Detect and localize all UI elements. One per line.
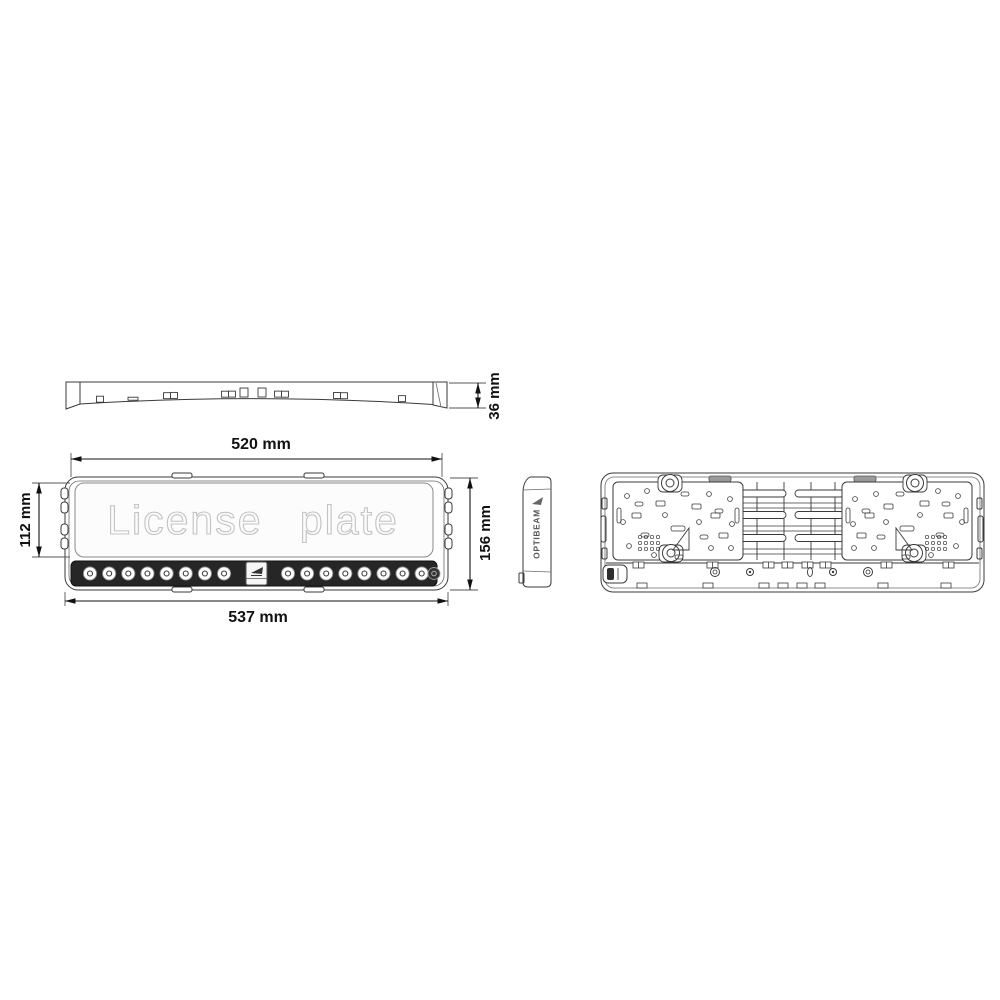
- led-ring: [222, 571, 227, 576]
- top-clip-tab: [854, 476, 876, 482]
- dimension-total-width: 537 mm: [65, 592, 448, 626]
- led-ring: [88, 571, 93, 576]
- front-view: License plate: [61, 473, 452, 592]
- led-ring: [164, 571, 169, 576]
- bottom-notch: [941, 583, 951, 588]
- back-mounting-panel-right: [842, 475, 972, 563]
- clip-tab: [399, 396, 406, 402]
- clip-tab: [97, 396, 104, 402]
- back-center-slots: [737, 482, 844, 560]
- led-ring: [126, 571, 131, 576]
- bottom-notch: [878, 583, 888, 588]
- clip-tab: [222, 391, 229, 397]
- dim-label-520mm: 520 mm: [231, 436, 291, 453]
- vent-slot: [737, 535, 786, 542]
- dimension-profile-height: 36 mm: [449, 372, 503, 420]
- clip-tab: [282, 391, 289, 397]
- led-ring: [145, 571, 150, 576]
- dim-label-112mm: 112 mm: [17, 492, 34, 547]
- led-ring: [286, 571, 291, 576]
- led-ring: [202, 571, 207, 576]
- frame-tab: [304, 587, 324, 592]
- latch-slot: [603, 565, 627, 583]
- clip-tab: [341, 393, 348, 399]
- vent-slot: [795, 512, 844, 519]
- bottom-notch: [815, 583, 825, 588]
- led-ring: [343, 571, 348, 576]
- dim-label-537mm: 537 mm: [228, 609, 288, 626]
- latch-pin: [607, 568, 614, 580]
- plate-engraved-text: License plate: [107, 497, 399, 543]
- strip-brand-badge: [246, 562, 267, 585]
- bottom-notch: [778, 583, 788, 588]
- clip-tab: [275, 391, 282, 397]
- bottom-notch: [759, 583, 769, 588]
- back-mounting-panel-left: [613, 475, 743, 563]
- vent-slot: [737, 512, 786, 519]
- led-ring: [362, 571, 367, 576]
- vent-slot: [795, 490, 844, 497]
- back-view: [601, 473, 984, 592]
- side-brand-logo-icon: [532, 497, 543, 505]
- license-plate-holder-drawing: 36 mm 520 mm License plate: [0, 0, 1000, 1000]
- profile-clip-tabs: [97, 388, 406, 402]
- led-ring: [183, 571, 188, 576]
- dimension-plate-width: 520 mm: [71, 436, 442, 477]
- back-bottom-rail: [603, 562, 979, 588]
- led-ring: [305, 571, 310, 576]
- dimension-total-height: 156 mm: [450, 478, 494, 590]
- profile-endcap-detail: [436, 383, 441, 407]
- profile-left-endcap: [66, 382, 80, 409]
- technical-drawing-page: 36 mm 520 mm License plate: [0, 0, 1000, 1000]
- clip-tab: [128, 397, 138, 400]
- oval-hole: [808, 568, 813, 577]
- bottom-notch: [703, 583, 713, 588]
- led-ring: [324, 571, 329, 576]
- frame-tab: [172, 587, 192, 592]
- clip-tab: [171, 392, 178, 398]
- frame-tab: [304, 473, 324, 478]
- vent-slot: [737, 490, 786, 497]
- clip-tab: [334, 392, 341, 398]
- led-ring: [107, 571, 112, 576]
- screw-boss: [662, 475, 679, 492]
- screw-hole: [711, 568, 720, 577]
- top-profile-view: [66, 382, 447, 409]
- dim-label-36mm: 36 mm: [486, 372, 503, 420]
- clip-tab: [240, 388, 248, 397]
- bottom-notch: [637, 583, 647, 588]
- screw-boss: [907, 475, 924, 492]
- dim-label-156mm: 156 mm: [477, 505, 494, 561]
- led-lens-end: [428, 568, 440, 580]
- led-ring: [381, 571, 386, 576]
- clip-tab: [229, 391, 236, 397]
- frame-tab: [172, 473, 192, 478]
- side-brand-text: OPTIBEAM: [531, 509, 541, 559]
- vent-slot: [795, 535, 844, 542]
- screw-hole: [864, 568, 873, 577]
- led-ring: [419, 571, 424, 576]
- side-edge-view: OPTIBEAM: [519, 477, 551, 587]
- clip-tab: [258, 388, 266, 397]
- top-clip-tab: [709, 476, 731, 482]
- led-ring: [400, 571, 405, 576]
- clip-tab: [164, 393, 171, 399]
- bottom-notch: [797, 583, 807, 588]
